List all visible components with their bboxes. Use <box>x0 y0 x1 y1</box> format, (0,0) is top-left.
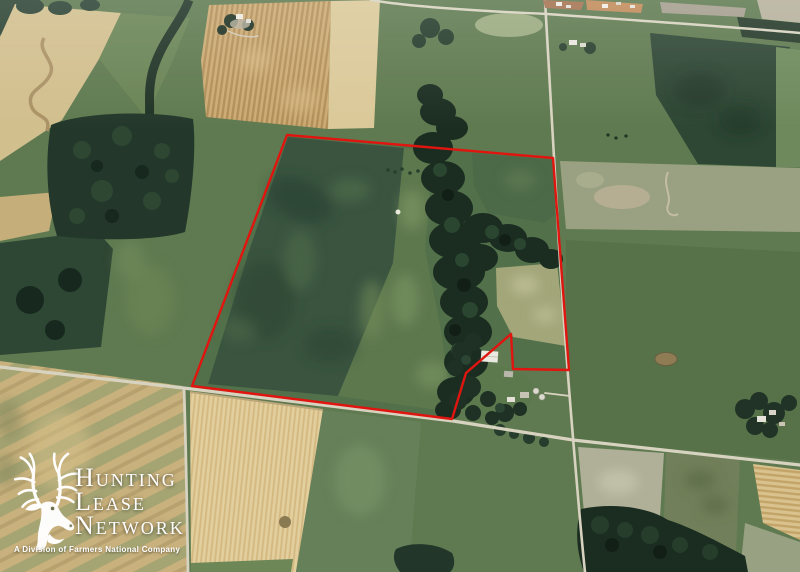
aerial-property-photo: Hunting Lease Network A Division of Farm… <box>0 0 800 572</box>
aerial-scene <box>0 0 800 572</box>
pond <box>655 353 677 366</box>
atmospheric-haze <box>0 0 800 130</box>
